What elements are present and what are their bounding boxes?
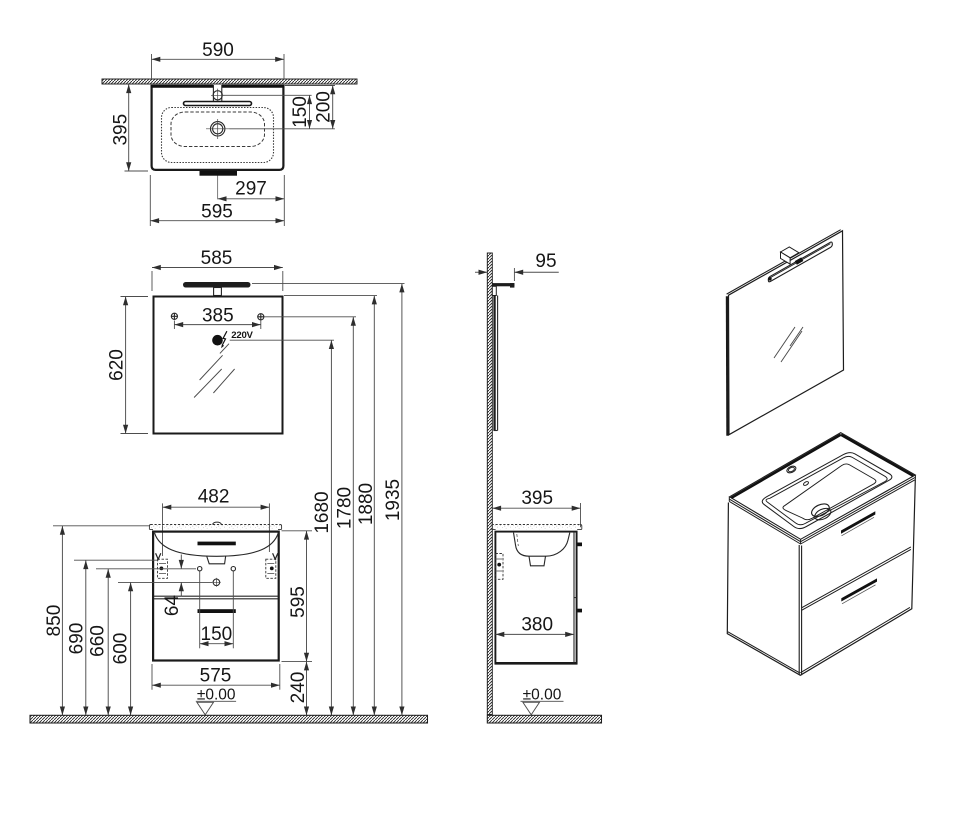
svg-text:690: 690 — [66, 623, 87, 655]
svg-text:200: 200 — [313, 91, 334, 123]
svg-text:585: 585 — [201, 248, 233, 269]
svg-text:395: 395 — [521, 488, 553, 509]
svg-text:1780: 1780 — [335, 487, 356, 529]
svg-text:590: 590 — [202, 40, 234, 61]
svg-text:660: 660 — [87, 625, 108, 657]
svg-text:595: 595 — [201, 201, 233, 222]
svg-text:1680: 1680 — [312, 491, 333, 533]
svg-text:95: 95 — [535, 251, 556, 272]
svg-text:600: 600 — [110, 633, 131, 665]
svg-text:220V: 220V — [231, 330, 253, 341]
svg-text:595: 595 — [288, 586, 309, 618]
svg-text:620: 620 — [106, 349, 127, 381]
svg-text:150: 150 — [290, 96, 311, 128]
svg-text:482: 482 — [198, 487, 230, 508]
svg-text:850: 850 — [44, 605, 65, 637]
svg-text:395: 395 — [110, 114, 131, 146]
svg-text:380: 380 — [521, 614, 553, 635]
svg-text:64: 64 — [162, 595, 183, 617]
svg-text:1935: 1935 — [383, 479, 404, 521]
svg-text:385: 385 — [202, 305, 234, 326]
svg-text:575: 575 — [200, 666, 232, 687]
svg-text:297: 297 — [235, 179, 267, 200]
svg-text:1880: 1880 — [356, 483, 377, 525]
svg-text:150: 150 — [201, 624, 233, 645]
svg-text:240: 240 — [288, 672, 309, 704]
